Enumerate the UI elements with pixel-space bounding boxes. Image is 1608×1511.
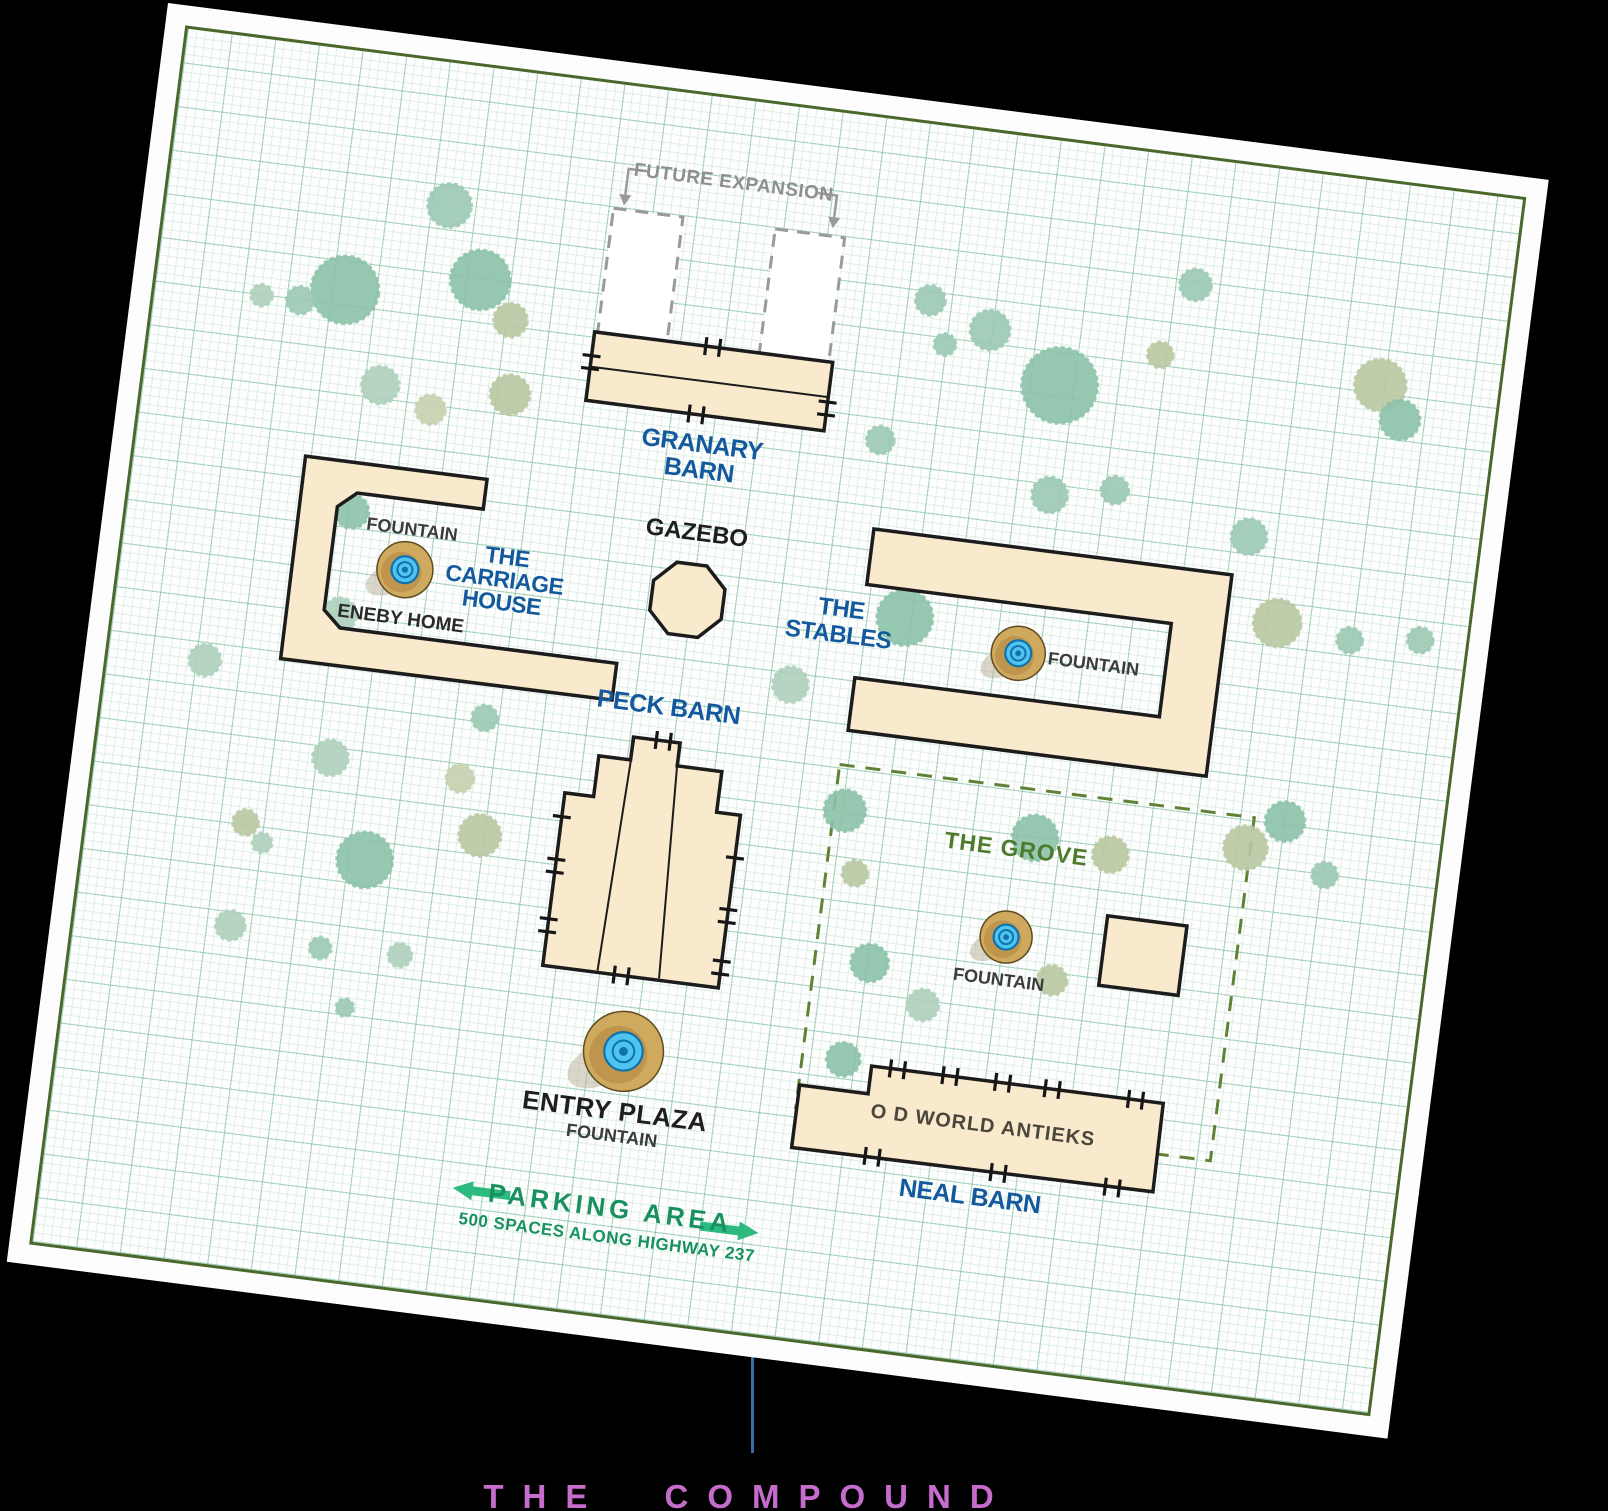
tree bbox=[187, 642, 223, 678]
grove-fountain-label: FOUNTAIN bbox=[952, 964, 1045, 995]
stables-fountain-label: FOUNTAIN bbox=[1047, 648, 1140, 679]
door-tick bbox=[994, 1073, 996, 1091]
door-tick bbox=[711, 973, 729, 975]
door-tick bbox=[942, 1066, 944, 1084]
tree bbox=[933, 332, 958, 357]
tree bbox=[1017, 343, 1102, 428]
door-tick bbox=[1127, 1090, 1129, 1108]
door-tick bbox=[864, 1147, 866, 1165]
door-tick bbox=[819, 401, 837, 403]
tree bbox=[310, 738, 350, 778]
tree bbox=[488, 372, 533, 417]
gazebo-building bbox=[647, 560, 728, 641]
fountain bbox=[358, 536, 437, 609]
door-tick bbox=[1008, 1075, 1010, 1093]
carriage-fountain-label: FOUNTAIN bbox=[365, 514, 458, 545]
door-tick bbox=[547, 858, 565, 860]
door-tick bbox=[627, 967, 629, 985]
tree bbox=[231, 808, 260, 837]
tree bbox=[968, 308, 1013, 353]
door-tick bbox=[817, 414, 835, 416]
title-pointer-line bbox=[751, 1356, 754, 1453]
tree bbox=[249, 283, 274, 308]
tree bbox=[1406, 626, 1435, 655]
tree bbox=[1178, 267, 1214, 303]
door-tick bbox=[1141, 1092, 1143, 1110]
tree bbox=[470, 703, 499, 732]
door-tick bbox=[705, 337, 707, 355]
door-tick bbox=[726, 857, 744, 859]
door-tick bbox=[581, 367, 599, 369]
canvas: FUTURE EXPANSION GRANARY BARN GAZEBO FOU… bbox=[0, 0, 1608, 1511]
door-tick bbox=[538, 931, 556, 933]
door-tick bbox=[669, 733, 671, 751]
tree bbox=[848, 942, 891, 985]
door-tick bbox=[1118, 1180, 1120, 1198]
door-tick bbox=[688, 405, 690, 423]
door-tick bbox=[613, 966, 615, 984]
tree bbox=[914, 284, 948, 318]
door-tick bbox=[718, 921, 736, 923]
stables-label-line2: STABLES bbox=[784, 615, 894, 655]
door-tick bbox=[583, 355, 601, 357]
door-tick bbox=[1058, 1081, 1060, 1099]
door-tick bbox=[702, 406, 704, 424]
tree bbox=[1250, 596, 1304, 650]
tree bbox=[1090, 835, 1130, 875]
tree bbox=[1310, 860, 1339, 889]
tree bbox=[1146, 340, 1175, 369]
tree bbox=[905, 987, 941, 1023]
door-tick bbox=[1044, 1079, 1046, 1097]
tree bbox=[359, 364, 402, 407]
future-expansion-left bbox=[598, 208, 683, 342]
tree bbox=[335, 998, 355, 1018]
tree bbox=[214, 909, 248, 943]
tree bbox=[824, 1040, 862, 1078]
grove-shed-building bbox=[1099, 916, 1187, 996]
tree bbox=[1263, 799, 1308, 844]
tree bbox=[1099, 475, 1130, 506]
door-tick bbox=[546, 871, 564, 873]
tree bbox=[821, 787, 868, 834]
door-tick bbox=[655, 731, 657, 749]
tree bbox=[308, 936, 333, 961]
tree bbox=[491, 301, 529, 339]
site-plan-paper: FUTURE EXPANSION GRANARY BARN GAZEBO FOU… bbox=[7, 3, 1549, 1439]
tree bbox=[1229, 517, 1269, 557]
tree bbox=[386, 942, 413, 969]
future-expansion-label: FUTURE EXPANSION bbox=[633, 160, 835, 206]
door-tick bbox=[903, 1061, 905, 1079]
tree bbox=[1029, 475, 1069, 515]
leader-arrow-right bbox=[827, 217, 840, 229]
door-tick bbox=[553, 815, 571, 817]
door-tick bbox=[719, 339, 721, 357]
tree bbox=[425, 181, 474, 230]
site-plan: FUTURE EXPANSION GRANARY BARN GAZEBO FOU… bbox=[7, 3, 1549, 1439]
future-expansion-right bbox=[759, 229, 844, 363]
door-tick bbox=[540, 918, 558, 920]
gazebo-label: GAZEBO bbox=[644, 513, 749, 553]
neal-barn-label: NEAL BARN bbox=[898, 1174, 1043, 1220]
fountain bbox=[962, 906, 1035, 974]
door-tick bbox=[889, 1060, 891, 1078]
tree bbox=[840, 859, 869, 888]
tree bbox=[251, 832, 273, 854]
door-tick bbox=[719, 908, 737, 910]
tree bbox=[1335, 626, 1364, 655]
tree bbox=[770, 664, 810, 704]
tree bbox=[333, 829, 396, 892]
door-tick bbox=[1104, 1178, 1106, 1196]
door-tick bbox=[956, 1068, 958, 1086]
page-title: THE COMPOUND bbox=[483, 1478, 1012, 1511]
fountain bbox=[973, 621, 1049, 691]
tree bbox=[865, 424, 896, 455]
peck-barn-label: PECK BARN bbox=[595, 684, 742, 730]
leader-arrow-left bbox=[618, 194, 631, 206]
tree bbox=[307, 252, 383, 328]
tree bbox=[456, 812, 503, 859]
door-tick bbox=[713, 960, 731, 962]
tree bbox=[414, 393, 448, 427]
tree bbox=[444, 763, 475, 794]
door-tick bbox=[878, 1149, 880, 1167]
peck-barn-building bbox=[543, 729, 749, 988]
door-tick bbox=[1004, 1165, 1006, 1183]
door-tick bbox=[990, 1163, 992, 1181]
tree bbox=[1221, 823, 1270, 872]
